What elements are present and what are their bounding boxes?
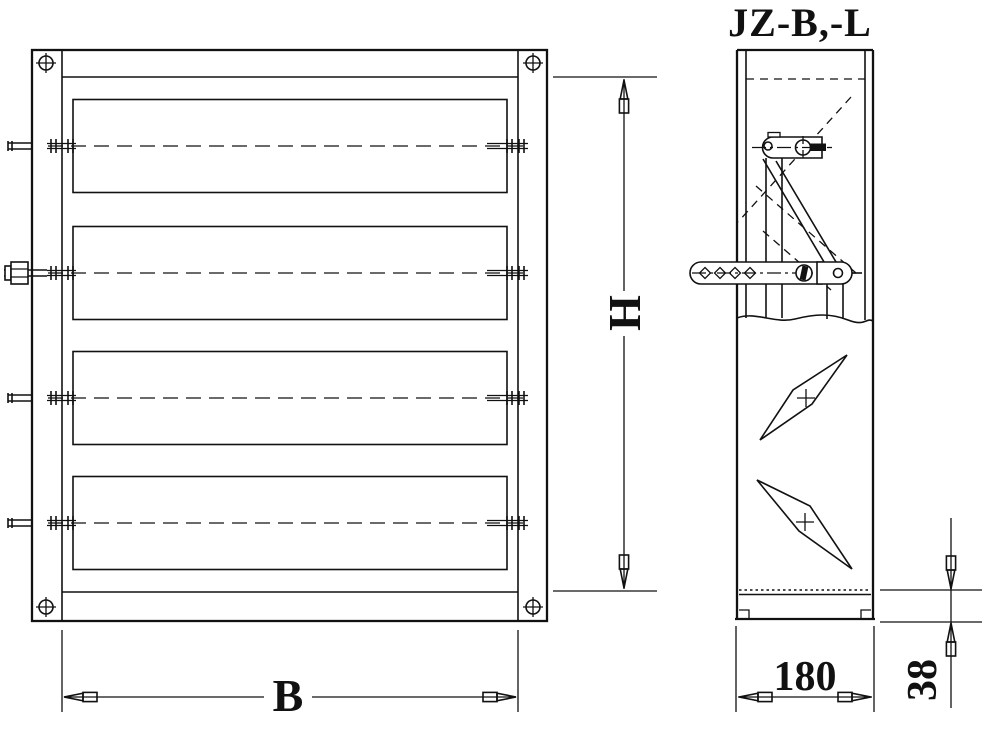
dimension-depth: 180	[736, 626, 874, 712]
drive-pin-with-nut	[4, 262, 76, 284]
blade-row-4	[8, 477, 528, 570]
connecting-link	[763, 159, 827, 267]
corner-screws	[36, 53, 543, 617]
dimension-height: H	[553, 77, 657, 591]
drawing-sheet: H B 180 38 JZ-B,-L	[0, 0, 1000, 729]
side-view	[690, 50, 875, 620]
front-view	[4, 50, 547, 621]
screw-icon	[36, 597, 56, 617]
drawing-title: JZ-B,-L	[728, 0, 872, 45]
screw-icon	[523, 597, 543, 617]
technical-drawing: H B 180 38 JZ-B,-L	[0, 0, 1000, 729]
blade-row-3	[8, 352, 528, 445]
axle-pin-left	[8, 139, 76, 153]
dim-width-label: B	[273, 670, 304, 721]
dimension-bottom-rail: 38	[880, 518, 982, 708]
phantom-blade-line	[756, 186, 856, 273]
dim-height-label: H	[599, 295, 650, 331]
bottom-channel	[735, 590, 875, 619]
dimension-width: B	[62, 630, 518, 721]
lower-clamp-bracket	[817, 262, 862, 319]
break-line	[737, 315, 873, 323]
blade-row-2	[4, 227, 528, 320]
dim-bottom-rail-label: 38	[900, 659, 946, 701]
axle-pin-left	[8, 391, 76, 405]
upper-clamp-bracket	[752, 133, 832, 160]
screw-icon	[523, 53, 543, 73]
side-view-mechanism	[690, 133, 862, 320]
blade-profile-upper	[760, 355, 847, 440]
phantom-blade-line	[738, 97, 851, 222]
dim-depth-label: 180	[774, 654, 837, 700]
pivot-screw	[796, 265, 812, 281]
blade-profile-lower	[757, 480, 852, 569]
screw-icon	[36, 53, 56, 73]
axle-pin-left	[8, 516, 76, 530]
blade-row-1	[8, 100, 528, 193]
frame-outline	[32, 50, 547, 621]
